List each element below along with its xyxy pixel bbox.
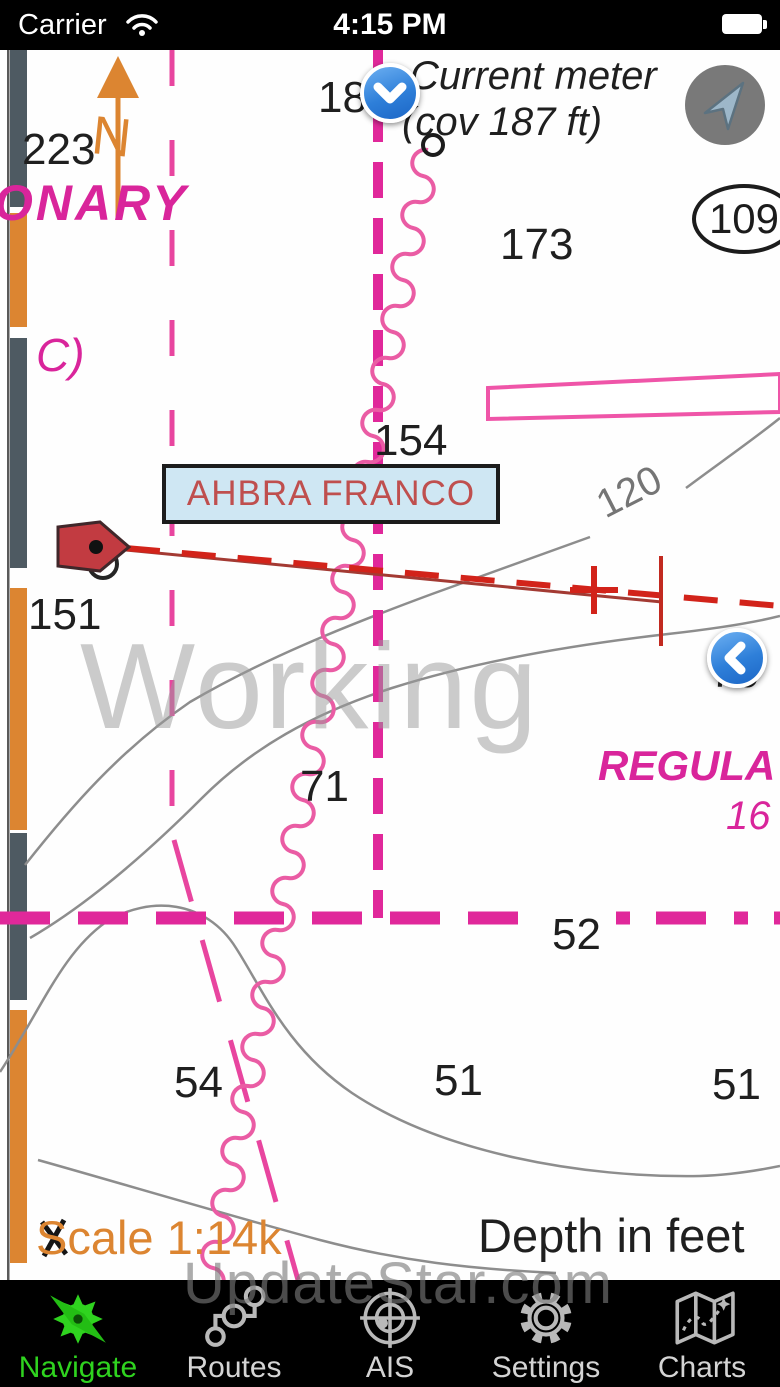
- collapse-panel-button[interactable]: [360, 63, 420, 123]
- area-designator: C): [36, 328, 85, 382]
- bearing-number: 223: [22, 125, 95, 175]
- battery-tip: [763, 20, 767, 29]
- depth-sounding: 51: [712, 1060, 761, 1110]
- depth-sounding: 173: [500, 220, 573, 270]
- nautical-chart-map[interactable]: Working 223 N ONARY C) 18 Current meter …: [0, 50, 780, 1280]
- tab-charts-label: Charts: [658, 1351, 746, 1385]
- depth-sounding: 154: [374, 416, 447, 466]
- depth-sounding: 54: [174, 1058, 223, 1108]
- regulated-area-text: REGULA: [598, 742, 775, 790]
- location-arrow-icon: [685, 65, 765, 145]
- tab-navigate-label: Navigate: [19, 1351, 137, 1385]
- tab-navigate[interactable]: Navigate: [0, 1280, 156, 1387]
- north-label: N: [89, 104, 134, 170]
- chevron-down-icon: [364, 67, 416, 119]
- cautionary-area-text: ONARY: [0, 174, 189, 232]
- compass-icon: [45, 1285, 111, 1351]
- depth-sounding: 151: [28, 590, 101, 640]
- current-meter-label: Current meter: [410, 54, 657, 99]
- vessel-name-label[interactable]: AHBRA FRANCO: [162, 464, 500, 524]
- map-icon: [669, 1285, 735, 1351]
- tab-charts[interactable]: Charts: [624, 1280, 780, 1387]
- side-panel-button[interactable]: [707, 628, 767, 688]
- status-bar: Carrier 4:15 PM: [0, 0, 780, 50]
- locate-me-button[interactable]: [685, 65, 765, 145]
- depth-sounding: 51: [434, 1056, 483, 1106]
- vessel-icon[interactable]: [58, 522, 129, 578]
- app-screen: Carrier 4:15 PM: [0, 0, 780, 1387]
- chevron-left-icon: [711, 632, 763, 684]
- chart-area-rectangle: [488, 374, 780, 419]
- tab-settings-label: Settings: [492, 1351, 600, 1385]
- current-meter-coverage: (cov 187 ft): [402, 100, 602, 145]
- circled-depth-value: 109: [709, 195, 779, 243]
- tab-routes-label: Routes: [186, 1351, 281, 1385]
- chart-border-line: [7, 50, 10, 1280]
- battery-icon: [722, 14, 762, 34]
- depth-sounding: 52: [552, 910, 601, 960]
- vessel-name-text: AHBRA FRANCO: [187, 474, 475, 514]
- clock: 4:15 PM: [0, 8, 780, 42]
- depth-sounding: 71: [300, 762, 349, 812]
- brand-watermark: UpdateStar.com: [183, 1250, 613, 1317]
- tab-ais-label: AIS: [366, 1351, 414, 1385]
- working-watermark: Working: [80, 616, 539, 756]
- regulated-area-number: 16: [726, 794, 771, 839]
